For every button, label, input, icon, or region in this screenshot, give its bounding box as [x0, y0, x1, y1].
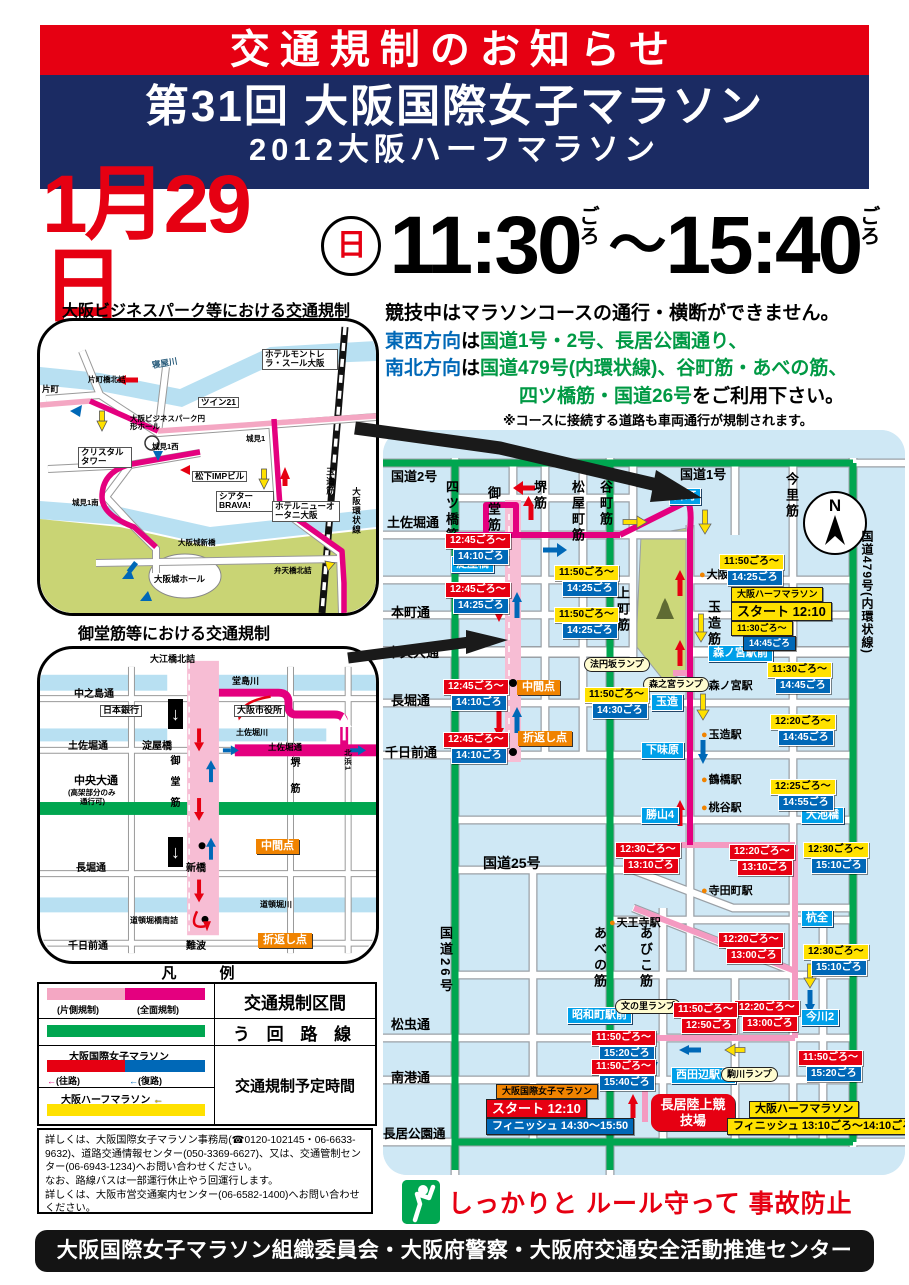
badge-end: 14:10ごろ: [451, 695, 507, 711]
weekday-circle: 日: [321, 216, 381, 276]
map2-label-oebashi: 大江橋北詰: [150, 655, 195, 665]
time-badge-18: 12:20ごろ〜13:00ごろ: [734, 1000, 800, 1032]
station-tamatsukuri: 玉造駅: [701, 730, 742, 741]
map2-label-kitahama1: 北浜1: [344, 749, 352, 771]
turnaround-tag: 折返し点: [518, 731, 572, 746]
map2-turnaround-tag: 折返し点: [258, 933, 312, 948]
map1-label-crystal-tower: クリスタルタワー: [78, 447, 132, 468]
badge-end: 12:50ごろ: [681, 1018, 737, 1034]
map1-label-matsushita-imp: 松下IMPビル: [192, 471, 247, 482]
regulation-notice-text: 競技中はマラソンコースの通行・横断ができません。 東西方向は国道1号・2号、長居…: [385, 300, 905, 431]
badge-start: 12:25ごろ〜: [770, 779, 836, 795]
map1-label-theater-brava: シアターBRAVA!: [216, 491, 274, 512]
inbound-arrow-icon: ←: [129, 1076, 138, 1086]
road-route25: 国道25号: [483, 856, 541, 870]
half-reg-end: 14:45ごろ: [743, 636, 796, 651]
inbound-label: ←(復路): [129, 1074, 162, 1087]
traffic-regulation-poster: 交通規制のお知らせ 第31回 大阪国際女子マラソン 2012大阪ハーフマラソン …: [0, 0, 909, 1285]
one-way-down-icon: ↓: [168, 699, 183, 729]
midosuji-map: 大江橋北詰 堂島川 中之島通 日本銀行 大阪市役所 土佐堀川 土佐堀通 淀屋橋 …: [37, 646, 379, 964]
women-finish-time: フィニッシュ 14:30〜15:50: [486, 1118, 634, 1135]
contact-line-2: なお、路線バスは一部運行休止やう回運行します。: [45, 1176, 278, 1187]
map2-label-tosaborigawa: 土佐堀川: [236, 729, 268, 738]
badge-end: 14:45ごろ: [778, 730, 834, 746]
legend-zone-text: 交通規制区間: [215, 984, 375, 1019]
notice-line-4: 四ツ橋筋・国道26号をご利用下さい。: [385, 383, 905, 411]
business-park-map: 片町 片町橋北詰 寝屋川 ホテルモントレ ラ・スール大阪 ツイン21 大阪ビジネ…: [37, 318, 379, 616]
badge-start: 12:45ごろ〜: [443, 732, 509, 748]
outbound-label: ←(往路): [47, 1074, 80, 1087]
map2-label-dotonboribashi: 道頓堀橋南詰: [130, 917, 178, 926]
map1-label-obp-hall: 大阪ビジネスパーク円形ホール: [130, 415, 212, 432]
badge-start: 12:30ごろ〜: [615, 842, 681, 858]
map2-label-sakaisuji: 堺筋: [288, 757, 298, 809]
map1-label-osakajo-hall: 大阪城ホール: [154, 575, 205, 584]
badge-end: 13:10ごろ: [623, 858, 679, 874]
connector-arrow-map1: [350, 420, 710, 510]
women-title: 大阪国際女子マラソン: [496, 1084, 598, 1099]
legend-detour-bar: [39, 1019, 215, 1046]
slogan-text: しっかりと ルール守って 事故防止: [448, 1184, 853, 1220]
ramp-komagawa: 駒川ランプ: [721, 1067, 778, 1082]
contact-info: 詳しくは、大阪国際女子マラソン事務局(☎0120-102145・06-6633-…: [37, 1128, 373, 1214]
tilde: 〜: [608, 217, 663, 275]
map2-label-bank-of-japan: 日本銀行: [100, 705, 142, 717]
notice-line-2: 東西方向は国道1号・2号、長居公園通り、: [385, 328, 905, 356]
road-matsumushi: 松虫通: [391, 1018, 430, 1031]
time-badge-17: 11:50ごろ〜15:20ごろ: [798, 1050, 863, 1082]
women-start-time: スタート 12:10: [486, 1099, 587, 1118]
map1-label-shiromi1-west: 城見1西: [152, 443, 179, 451]
map2-label-shinbashi: 新橋: [186, 863, 206, 874]
station-tennoji: 天王寺駅: [609, 918, 661, 929]
station-teradacho: 寺田町駅: [701, 886, 753, 897]
badge-start: 11:50ごろ〜: [591, 1030, 656, 1046]
badge-end: 13:00ごろ: [742, 1016, 798, 1032]
road-route479: 国道479号(内環状線): [861, 530, 873, 654]
station-morinomiya: 森ノ宮駅: [701, 681, 753, 692]
time-badge-16: 12:30ごろ〜15:10ごろ: [803, 944, 869, 976]
badge-end: 14:30ごろ: [592, 703, 648, 719]
legend-times: 大阪国際女子マラソン ←(往路) ←(復路) 大阪ハーフマラソン ←: [39, 1046, 215, 1124]
half-start-title: 大阪ハーフマラソン: [731, 587, 823, 602]
map2-label-dotonborigawa: 道頓堀川: [260, 901, 292, 910]
map2-label-tosabori-dori: 土佐堀通: [68, 741, 108, 752]
badge-start: 12:45ごろ〜: [445, 582, 511, 598]
badge-end: 14:55ごろ: [778, 795, 834, 811]
junction-kumata: 杭全: [801, 910, 833, 927]
road-tamatsukuri-suji: 玉造筋: [707, 600, 720, 648]
map1-label-shiromi1: 城見1: [246, 435, 265, 443]
notice-line-3: 南北方向は国道479号(内環状線)、谷町筋・あべの筋、: [385, 355, 905, 383]
time-badge-4: 11:50ごろ〜14:25ごろ: [554, 607, 619, 639]
time-badge-13: 12:20ごろ〜13:10ごろ: [729, 844, 795, 876]
contact-line-1: 詳しくは、大阪国際女子マラソン事務局(☎0120-102145・06-6633-…: [45, 1135, 361, 1173]
time-badge-11: 12:25ごろ〜14:55ごろ: [770, 779, 836, 811]
map1-label-katamachibashi: 片町橋北詰: [88, 376, 126, 384]
badge-end: 14:25ごろ: [453, 598, 509, 614]
badge-start: 11:50ごろ〜: [584, 687, 649, 703]
approx-2: ごろ: [860, 207, 887, 247]
map1-label-tamatsukuri-suji: 玉造筋: [326, 467, 335, 496]
badge-end: 14:10ごろ: [453, 549, 509, 565]
badge-start: 12:45ごろ〜: [443, 679, 509, 695]
badge-end: 14:45ごろ: [775, 678, 831, 694]
badge-end: 14:10ごろ: [451, 748, 507, 764]
road-honmachi: 本町通: [391, 606, 430, 619]
junction-katsuyama4: 勝山4: [641, 807, 679, 824]
road-abiko: あびこ筋: [639, 926, 652, 990]
map2-label-yodoyabashi: 淀屋橋: [142, 741, 172, 752]
full-closed-bar: [125, 988, 205, 1000]
map2-label-chuo-note1: (高架部分のみ: [68, 789, 116, 797]
notice-line-1: 競技中はマラソンコースの通行・横断ができません。: [385, 300, 905, 328]
time-badge-20: 11:50ごろ〜15:20ごろ: [591, 1030, 656, 1062]
organizer-footer: 大阪国際女子マラソン組織委員会・大阪府警察・大阪府交通安全活動推進センター: [35, 1230, 874, 1272]
station-tsuruhashi: 鶴橋駅: [701, 775, 742, 786]
legend-times-text: 交通規制予定時間: [215, 1046, 375, 1124]
nagai-stadium-tag: 長居陸上競技場: [651, 1094, 735, 1131]
time-badge-9: 11:30ごろ〜14:45ごろ: [767, 662, 832, 694]
notice-banner: 交通規制のお知らせ: [40, 25, 869, 75]
time-badge-15: 12:20ごろ〜13:00ごろ: [718, 932, 784, 964]
road-nanko: 南港通: [391, 1071, 430, 1084]
time-badge-7: 12:45ごろ〜14:10ごろ: [443, 679, 509, 711]
time-badge-2: 12:45ごろ〜14:25ごろ: [445, 582, 511, 614]
ramp-fuminosato: 文の里ランプ: [615, 999, 681, 1014]
badge-end: 15:10ごろ: [811, 960, 867, 976]
time-badge-5: 11:50ごろ〜14:25ごろ: [719, 554, 784, 586]
map1-label-hotel-new-otani: ホテルニューオータニ大阪: [272, 501, 340, 522]
badge-start: 11:50ごろ〜: [554, 565, 619, 581]
time-badge-19: 11:50ごろ〜12:50ごろ: [673, 1002, 738, 1034]
map2-label-dojimagawa: 堂島川: [232, 677, 259, 687]
time-start: 11:30: [389, 205, 579, 287]
badge-end: 14:25ごろ: [727, 570, 783, 586]
badge-start: 11:50ごろ〜: [554, 607, 619, 623]
half-marathon-finish-stack: 大阪ハーフマラソン フィニッシュ 13:10ごろ〜14:10ごろ: [727, 1101, 905, 1135]
midpoint-tag: 中間点: [517, 680, 560, 695]
station-momodani: 桃谷駅: [701, 803, 742, 814]
half-finish-title: 大阪ハーフマラソン: [749, 1101, 859, 1118]
event-title: 第31回 大阪国際女子マラソン: [40, 83, 869, 131]
badge-start: 12:45ごろ〜: [445, 533, 511, 549]
legend-detour-text: う 回 路 線: [215, 1019, 375, 1046]
ramp-morinomiya: 森之宮ランプ: [643, 677, 709, 692]
full-closed-label: (全面規制): [137, 1003, 179, 1016]
junction-tamatsukuri: 玉造: [651, 694, 683, 711]
map2-midpoint-tag: 中間点: [256, 839, 299, 854]
road-imazato: 今里筋: [785, 472, 798, 520]
time-badge-1: 12:45ごろ〜14:10ごろ: [445, 533, 511, 565]
ramp-hoenzaka: 法円坂ランプ: [584, 657, 650, 672]
map1-label-bentenbashi: 弁天橋北詰: [274, 567, 312, 575]
main-course-map: N 国道2号 土佐堀通 本町通 中央大通 長堀通 千日前通 国道25号 松虫通 …: [383, 430, 905, 1175]
map2-label-nagahori: 長堀通: [76, 863, 106, 874]
badge-end: 15:10ごろ: [811, 858, 867, 874]
half-reg-start: 11:30ごろ〜: [731, 621, 793, 636]
time-badge-12: 12:30ごろ〜13:10ごろ: [615, 842, 681, 874]
half-closed-bar: [47, 988, 125, 1000]
map1-label-shiromi1-south: 城見1南: [72, 499, 99, 507]
time-badge-8: 12:45ごろ〜14:10ごろ: [443, 732, 509, 764]
road-nagai-koen: 長居公園通: [383, 1128, 446, 1141]
badge-end: 13:10ごろ: [737, 860, 793, 876]
time-badge-14: 12:30ごろ〜15:10ごろ: [803, 842, 869, 874]
badge-start: 11:50ごろ〜: [719, 554, 784, 570]
badge-start: 12:20ごろ〜: [718, 932, 784, 948]
badge-start: 12:30ごろ〜: [803, 944, 869, 960]
legend: (片側規制) (全面規制) 交通規制区間 う 回 路 線 大阪国際女子マラソン …: [37, 982, 377, 1126]
badge-end: 15:20ごろ: [806, 1066, 862, 1082]
map1-label-twin21: ツイン21: [198, 397, 239, 408]
detour-bar: [47, 1025, 205, 1037]
badge-start: 11:50ごろ〜: [591, 1059, 656, 1075]
road-nagahori: 長堀通: [391, 694, 430, 707]
badge-start: 12:20ごろ〜: [770, 714, 836, 730]
junction-shimomihara: 下味原: [641, 742, 684, 759]
badge-end: 13:00ごろ: [726, 948, 782, 964]
time-badge-10: 12:20ごろ〜14:45ごろ: [770, 714, 836, 746]
map1-label-hotel-monterey: ホテルモントレ ラ・スール大阪: [262, 349, 338, 370]
half-start-time: スタート 12:10: [731, 602, 832, 621]
time-range: 11:30 ごろ 〜 15:40 ごろ: [389, 205, 887, 287]
badge-start: 11:50ごろ〜: [798, 1050, 863, 1066]
badge-start: 11:30ごろ〜: [767, 662, 832, 678]
approx-1: ごろ: [580, 207, 607, 247]
badge-start: 12:20ごろ〜: [734, 1000, 800, 1016]
half-finish-time: フィニッシュ 13:10ごろ〜14:10ごろ: [727, 1118, 905, 1135]
compass-north: N: [829, 496, 841, 515]
map2-label-midosuji: 御堂筋: [168, 755, 178, 818]
safety-slogan: しっかりと ルール守って 事故防止: [402, 1180, 853, 1224]
legend-divider: [39, 1087, 214, 1088]
connector-arrow-map2: [340, 622, 515, 667]
map2-label-chuo-note2: 通行可): [80, 798, 105, 806]
women-outbound-bar: [47, 1060, 125, 1072]
map2-label-namba: 難波: [186, 941, 206, 952]
map2-label-city-hall: 大阪市役所: [234, 705, 285, 717]
road-sennichimae: 千日前通: [385, 746, 437, 759]
outbound-arrow-icon: ←: [47, 1076, 56, 1086]
badge-start: 11:50ごろ〜: [673, 1002, 738, 1018]
map2-label-sennichimae: 千日前通: [68, 941, 108, 952]
half-closed-label: (片側規制): [57, 1003, 99, 1016]
contact-line-3: 詳しくは、大阪市営交通案内センター(06-6582-1400)へお問い合わせくだ…: [45, 1190, 360, 1215]
road-route26: 国道26号: [439, 926, 452, 994]
half-marathon-start-stack: 大阪ハーフマラソン スタート 12:10 11:30ごろ〜 14:45ごろ: [731, 587, 832, 651]
map2-label-nakanoshima: 中之島通: [74, 689, 114, 700]
road-tosabori: 土佐堀通: [387, 516, 439, 529]
legend-title: 凡 例: [37, 962, 373, 983]
map1-label-osakajo-shinbashi: 大阪城新橋: [178, 539, 216, 547]
badge-end: 14:25ごろ: [562, 623, 618, 639]
women-marathon-start-stack: 大阪国際女子マラソン スタート 12:10 フィニッシュ 14:30〜15:50: [486, 1084, 634, 1135]
badge-start: 12:30ごろ〜: [803, 842, 869, 858]
women-inbound-bar: [125, 1060, 205, 1072]
time-badge-3: 11:50ごろ〜14:25ごろ: [554, 565, 619, 597]
badge-start: 12:20ごろ〜: [729, 844, 795, 860]
time-badge-6: 11:50ごろ〜14:30ごろ: [584, 687, 649, 719]
half-marathon-bar: [47, 1104, 205, 1116]
pedestrian-icon: [402, 1180, 440, 1224]
legend-zone-bars: (片側規制) (全面規制): [39, 984, 215, 1019]
map2-label-tosabori-on-course: 土佐堀通: [268, 743, 302, 752]
time-end: 15:40: [665, 205, 860, 287]
map1-label-katamachi: 片町: [42, 385, 59, 394]
badge-end: 14:25ごろ: [562, 581, 618, 597]
map2-label-chuo-odori: 中央大通: [74, 775, 118, 787]
schedule-row: 1月29日 日 11:30 ごろ 〜 15:40 ごろ: [42, 196, 887, 296]
road-abeno: あべの筋: [593, 926, 606, 990]
junction-imagawa2: 今川2: [801, 1009, 839, 1026]
map2-title: 御堂筋等における交通規制: [78, 620, 270, 644]
one-way-down-icon: ↓: [168, 837, 183, 867]
